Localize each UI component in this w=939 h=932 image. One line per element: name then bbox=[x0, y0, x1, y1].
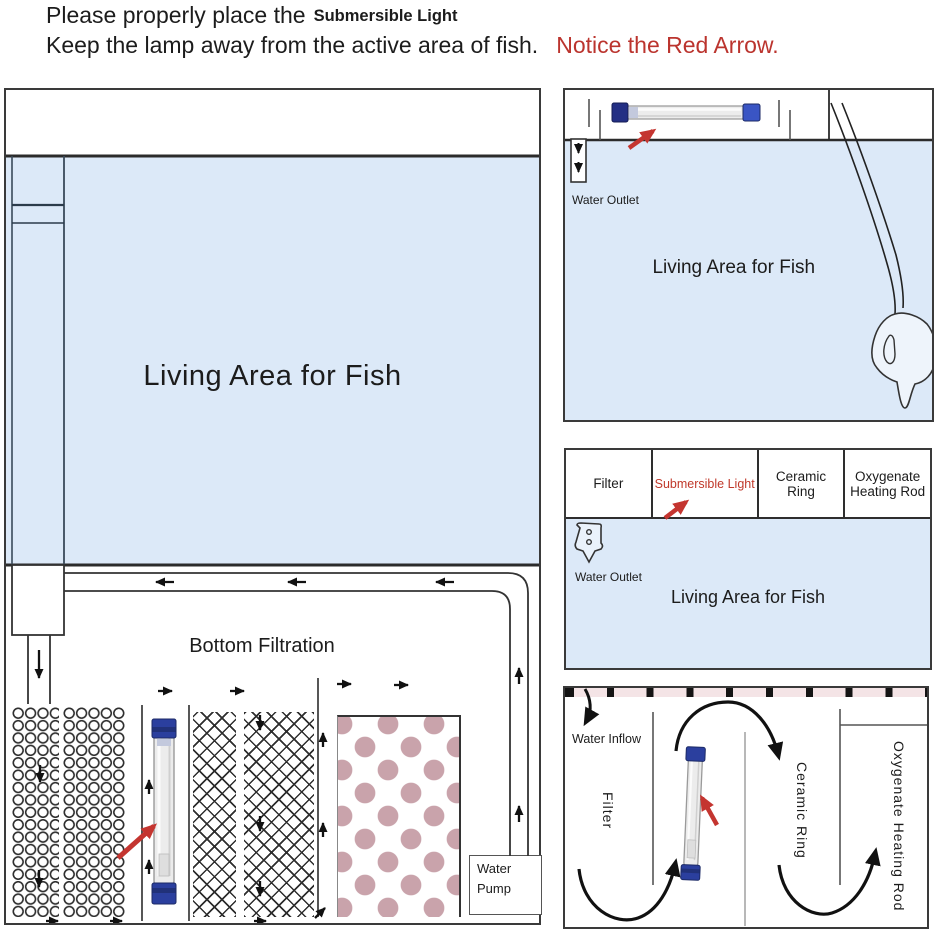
column-header-oxygenate-heating-rod: Oxygenate Heating Rod bbox=[845, 450, 930, 517]
ceramic-ring-label: Ceramic Ring bbox=[794, 762, 810, 859]
column-header-filter: Filter bbox=[566, 450, 653, 517]
down-spout bbox=[28, 635, 50, 704]
uv-light-icon bbox=[612, 103, 760, 122]
overflow-box bbox=[12, 565, 64, 635]
water-inflow-label: Water Inflow bbox=[572, 732, 641, 746]
submersible-light-label: Submersible Light bbox=[314, 7, 458, 25]
compartment-header-row: Filter Submersible Light Ceramic Ring Ox… bbox=[566, 450, 930, 519]
water-pump-box: Water Pump bbox=[469, 855, 542, 915]
living-area-label: Living Area for Fish bbox=[6, 360, 539, 393]
bottom-filtration-label: Bottom Filtration bbox=[102, 635, 422, 658]
column-header-submersible-light: Submersible Light bbox=[653, 450, 759, 517]
middle-right-panel-compartments: Filter Submersible Light Ceramic Ring Ox… bbox=[564, 448, 932, 670]
filter-media-bioballs-1 bbox=[12, 707, 59, 917]
inflow-grate-strip bbox=[565, 688, 927, 697]
flow-arc-bottom-left bbox=[579, 865, 675, 920]
filter-label: Filter bbox=[600, 792, 616, 829]
red-arrow-icon bbox=[702, 798, 717, 825]
top-right-panel-hang-on-light: Living Area for Fish Water Outlet Water … bbox=[563, 88, 934, 422]
living-area-label: Living Area for Fish bbox=[565, 257, 903, 279]
filter-media-mesh-2 bbox=[244, 712, 314, 917]
living-area-label: Living Area for Fish bbox=[566, 587, 930, 608]
header-text: Please properly place the bbox=[46, 2, 306, 28]
filter-media-mesh-1 bbox=[193, 712, 236, 917]
oxygenate-heating-rod-label: Oxygenate Heating Rod bbox=[891, 741, 907, 911]
water-pump-label: Water Pump bbox=[887, 333, 935, 368]
bottom-right-linework bbox=[565, 688, 927, 927]
flow-arcs bbox=[579, 689, 875, 920]
living-area-water bbox=[565, 140, 932, 420]
header-line1: Please properly place theSubmersible Lig… bbox=[46, 2, 458, 29]
diagram-canvas: Please properly place theSubmersible Lig… bbox=[0, 0, 939, 932]
flow-arrow-up-right bbox=[315, 908, 325, 918]
mount-tick-marks bbox=[589, 99, 790, 140]
header-line2: Keep the lamp away from the active area … bbox=[46, 32, 779, 59]
flow-arc-over-top bbox=[676, 702, 778, 754]
filter-media-bioballs-2 bbox=[63, 707, 125, 917]
uv-light-icon bbox=[152, 719, 176, 904]
notice-red-arrow-label: Notice the Red Arrow. bbox=[556, 32, 778, 58]
uv-light-icon bbox=[681, 747, 706, 881]
bottom-right-panel-canister-flow: Water Inflow Filter Ceramic Ring Oxygena… bbox=[563, 686, 929, 929]
column-header-ceramic-ring: Ceramic Ring bbox=[759, 450, 846, 517]
filter-media-ceramic-dots bbox=[337, 715, 461, 917]
header-text2: Keep the lamp away from the active area … bbox=[46, 32, 538, 58]
left-panel-bottom-filtration-tank: Living Area for Fish Bottom Filtration W… bbox=[4, 88, 541, 925]
pipe-outlet-circle bbox=[28, 571, 50, 593]
flow-arc-bottom-right bbox=[779, 854, 875, 914]
water-outlet-label: Water Outlet bbox=[575, 570, 642, 584]
water-outlet-label: Water Outlet bbox=[572, 193, 639, 207]
